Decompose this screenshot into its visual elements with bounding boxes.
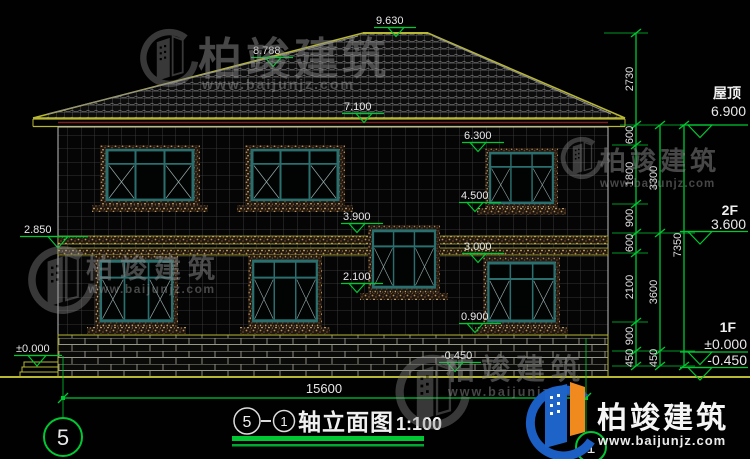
cad-elevation-drawing: 9.630 8.788 7.100 6.300 4.500 3.900 bbox=[0, 0, 750, 459]
title-axis-left: 5 bbox=[243, 414, 252, 431]
svg-text:www.baijunjz.com: www.baijunjz.com bbox=[87, 282, 216, 296]
window-stairwell bbox=[368, 225, 440, 293]
svg-text:600: 600 bbox=[624, 126, 636, 144]
svg-text:柏竣建筑: 柏竣建筑 bbox=[86, 253, 222, 284]
svg-text:www.baijunjz.com: www.baijunjz.com bbox=[597, 433, 726, 448]
drawing-title: 轴立面图 bbox=[298, 409, 394, 435]
svg-text:0.900: 0.900 bbox=[461, 311, 489, 323]
svg-text:450: 450 bbox=[648, 349, 660, 367]
svg-text:3.600: 3.600 bbox=[711, 216, 746, 232]
svg-text:±0.000: ±0.000 bbox=[704, 336, 747, 352]
svg-text:1F: 1F bbox=[720, 319, 737, 335]
svg-text:±0.000: ±0.000 bbox=[16, 343, 50, 355]
svg-text:5: 5 bbox=[57, 425, 69, 450]
svg-text:3.900: 3.900 bbox=[343, 211, 371, 223]
svg-text:900: 900 bbox=[624, 327, 636, 345]
svg-text:-0.450: -0.450 bbox=[707, 352, 747, 368]
window-1f-right bbox=[483, 257, 560, 327]
window-1f-center bbox=[248, 255, 322, 327]
svg-text:www.baijunjz.com: www.baijunjz.com bbox=[201, 76, 355, 92]
svg-text:2100: 2100 bbox=[624, 275, 636, 299]
svg-text:7.100: 7.100 bbox=[344, 101, 372, 113]
title-underline-thin bbox=[232, 444, 424, 447]
svg-text:2.850: 2.850 bbox=[24, 224, 52, 236]
svg-text:柏竣建筑: 柏竣建筑 bbox=[600, 146, 720, 176]
svg-text:www.baijunjz.com: www.baijunjz.com bbox=[599, 178, 715, 190]
svg-text:9.630: 9.630 bbox=[376, 15, 404, 27]
svg-text:2730: 2730 bbox=[624, 67, 636, 91]
svg-text:6.900: 6.900 bbox=[711, 103, 746, 119]
svg-text:2.100: 2.100 bbox=[343, 271, 371, 283]
window-2f-right bbox=[485, 148, 558, 208]
window-2f-center bbox=[245, 145, 345, 205]
svg-text:3.000: 3.000 bbox=[464, 241, 492, 253]
window-2f-left bbox=[100, 145, 200, 205]
total-width-dim: 15600 bbox=[306, 381, 342, 396]
svg-text:7350: 7350 bbox=[672, 233, 684, 257]
svg-text:600: 600 bbox=[624, 234, 636, 252]
svg-text:柏竣建筑: 柏竣建筑 bbox=[597, 401, 729, 435]
svg-text:柏竣建筑: 柏竣建筑 bbox=[446, 352, 586, 386]
svg-text:900: 900 bbox=[624, 209, 636, 227]
floor-band-2f bbox=[58, 236, 608, 244]
svg-text:3600: 3600 bbox=[648, 280, 660, 304]
svg-text:屋顶: 屋顶 bbox=[713, 85, 741, 101]
svg-text:450: 450 bbox=[624, 349, 636, 367]
svg-text:4.500: 4.500 bbox=[461, 190, 489, 202]
title-underline-thick bbox=[232, 436, 424, 441]
title-axis-right: 1 bbox=[280, 414, 287, 429]
svg-text:6.300: 6.300 bbox=[464, 130, 492, 142]
drawing-canvas: 9.630 8.788 7.100 6.300 4.500 3.900 bbox=[0, 0, 750, 459]
